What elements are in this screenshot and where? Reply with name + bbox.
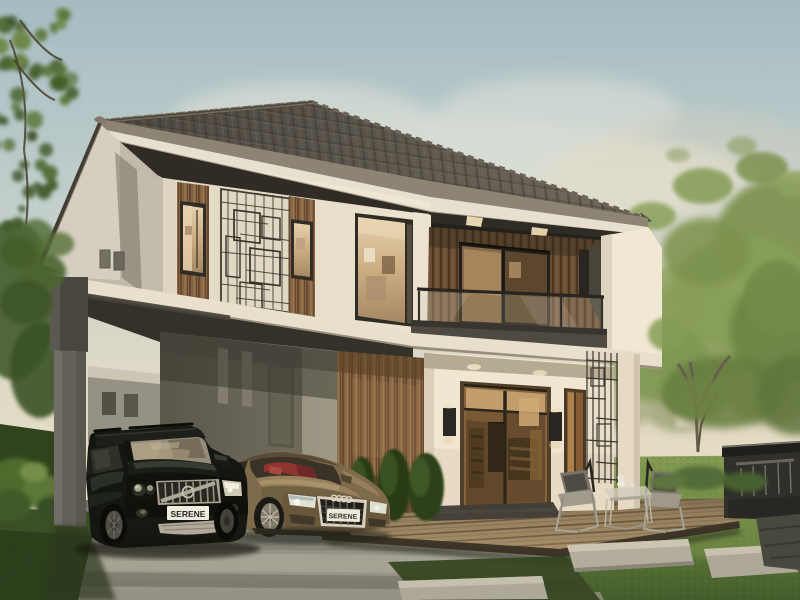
- svg-text:SERENE: SERENE: [328, 513, 357, 521]
- svg-text:SERENE: SERENE: [171, 509, 206, 519]
